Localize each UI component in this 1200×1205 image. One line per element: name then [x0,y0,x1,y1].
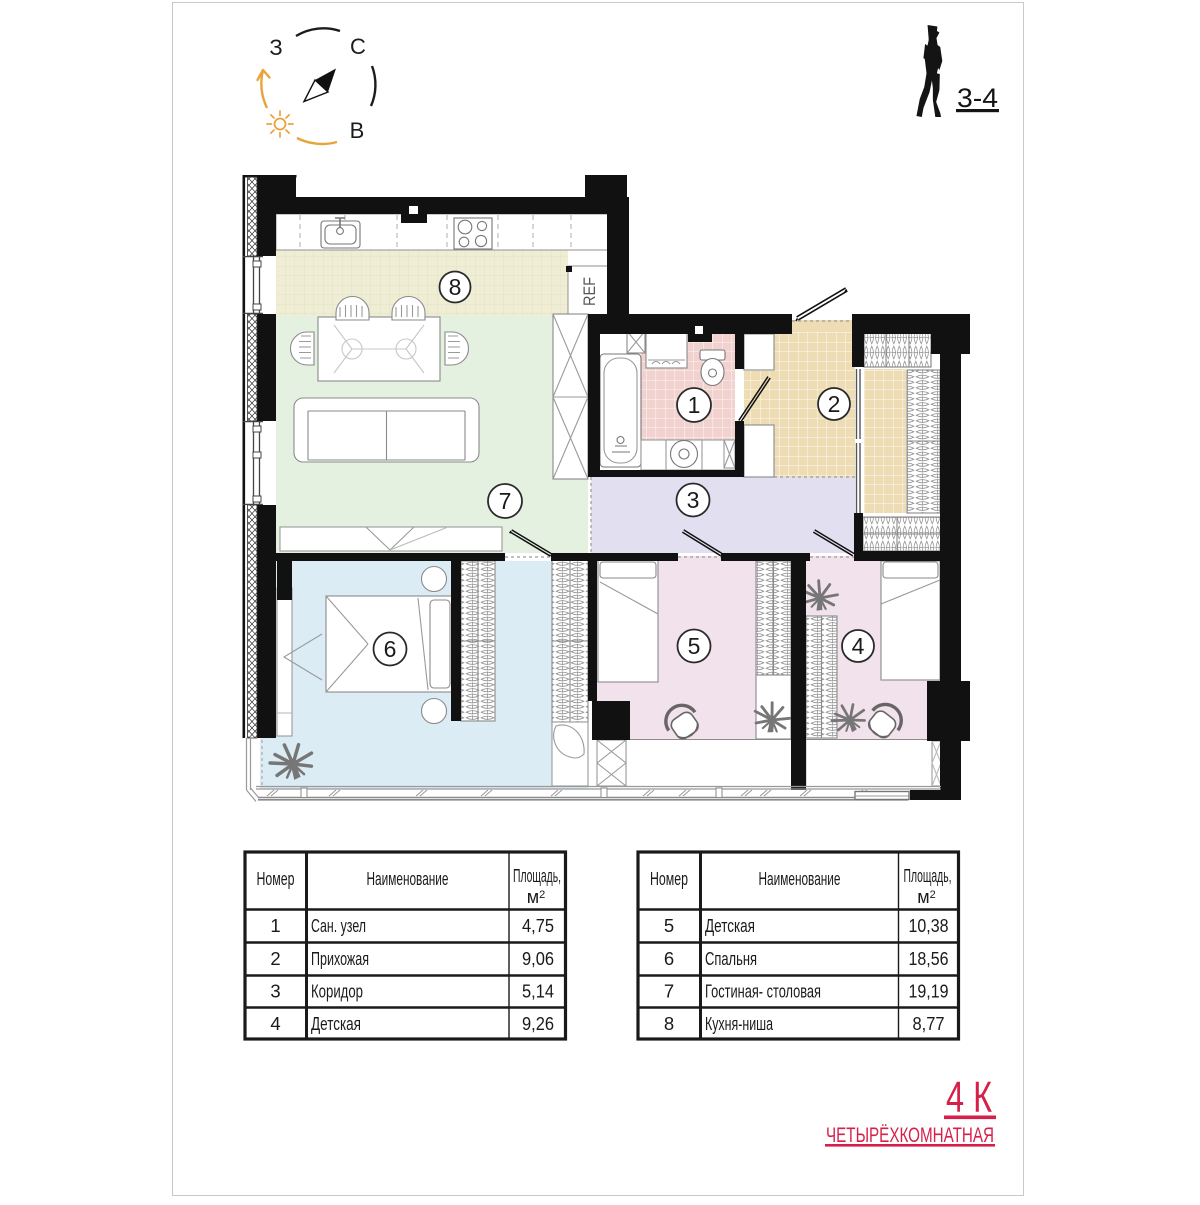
svg-text:З: З [269,35,282,60]
svg-text:Наименование: Наименование [759,869,841,889]
svg-text:С: С [350,34,366,59]
svg-text:6: 6 [664,948,674,969]
svg-text:1: 1 [270,915,280,936]
svg-text:В: В [350,118,365,143]
svg-text:1: 1 [688,392,701,418]
svg-text:Гостиная- столовая: Гостиная- столовая [705,981,821,1002]
svg-text:Номер: Номер [650,869,688,889]
svg-text:Наименование: Наименование [367,869,449,889]
svg-text:5: 5 [664,915,674,936]
svg-text:4: 4 [852,633,865,659]
svg-text:Спальня: Спальня [705,948,757,969]
svg-text:ЧЕТЫРЁХКОМНАТНАЯ: ЧЕТЫРЁХКОМНАТНАЯ [826,1124,994,1147]
svg-text:3-4: 3-4 [957,83,998,113]
svg-text:4: 4 [270,1013,280,1034]
svg-text:Площадь,: Площадь, [904,866,952,886]
svg-text:Детская: Детская [705,915,755,936]
svg-text:18,56: 18,56 [909,948,949,969]
svg-text:Детская: Детская [311,1013,361,1034]
svg-text:3: 3 [270,981,280,1002]
svg-text:8: 8 [664,1013,674,1034]
svg-text:4 К: 4 К [946,1073,992,1122]
svg-text:2: 2 [270,948,280,969]
svg-text:REF: REF [580,277,599,306]
svg-text:Кухня-ниша: Кухня-ниша [705,1013,773,1034]
svg-text:Номер: Номер [257,869,295,889]
svg-text:3: 3 [687,487,700,513]
svg-text:5,14: 5,14 [522,981,554,1002]
svg-text:9,26: 9,26 [522,1013,554,1034]
svg-text:9,06: 9,06 [522,948,554,969]
svg-text:2: 2 [828,391,841,417]
svg-text:8: 8 [449,274,462,300]
svg-text:Сан. узел: Сан. узел [311,915,366,936]
svg-text:7: 7 [664,981,674,1002]
svg-text:Прихожая: Прихожая [311,948,369,969]
svg-text:4,75: 4,75 [522,915,554,936]
svg-text:8,77: 8,77 [913,1013,945,1034]
svg-text:6: 6 [384,636,397,662]
svg-text:Площадь,: Площадь, [513,866,561,886]
svg-text:5: 5 [688,633,701,659]
svg-text:Коридор: Коридор [311,981,363,1002]
svg-text:19,19: 19,19 [909,981,949,1002]
svg-text:10,38: 10,38 [909,915,949,936]
svg-text:7: 7 [499,488,512,514]
